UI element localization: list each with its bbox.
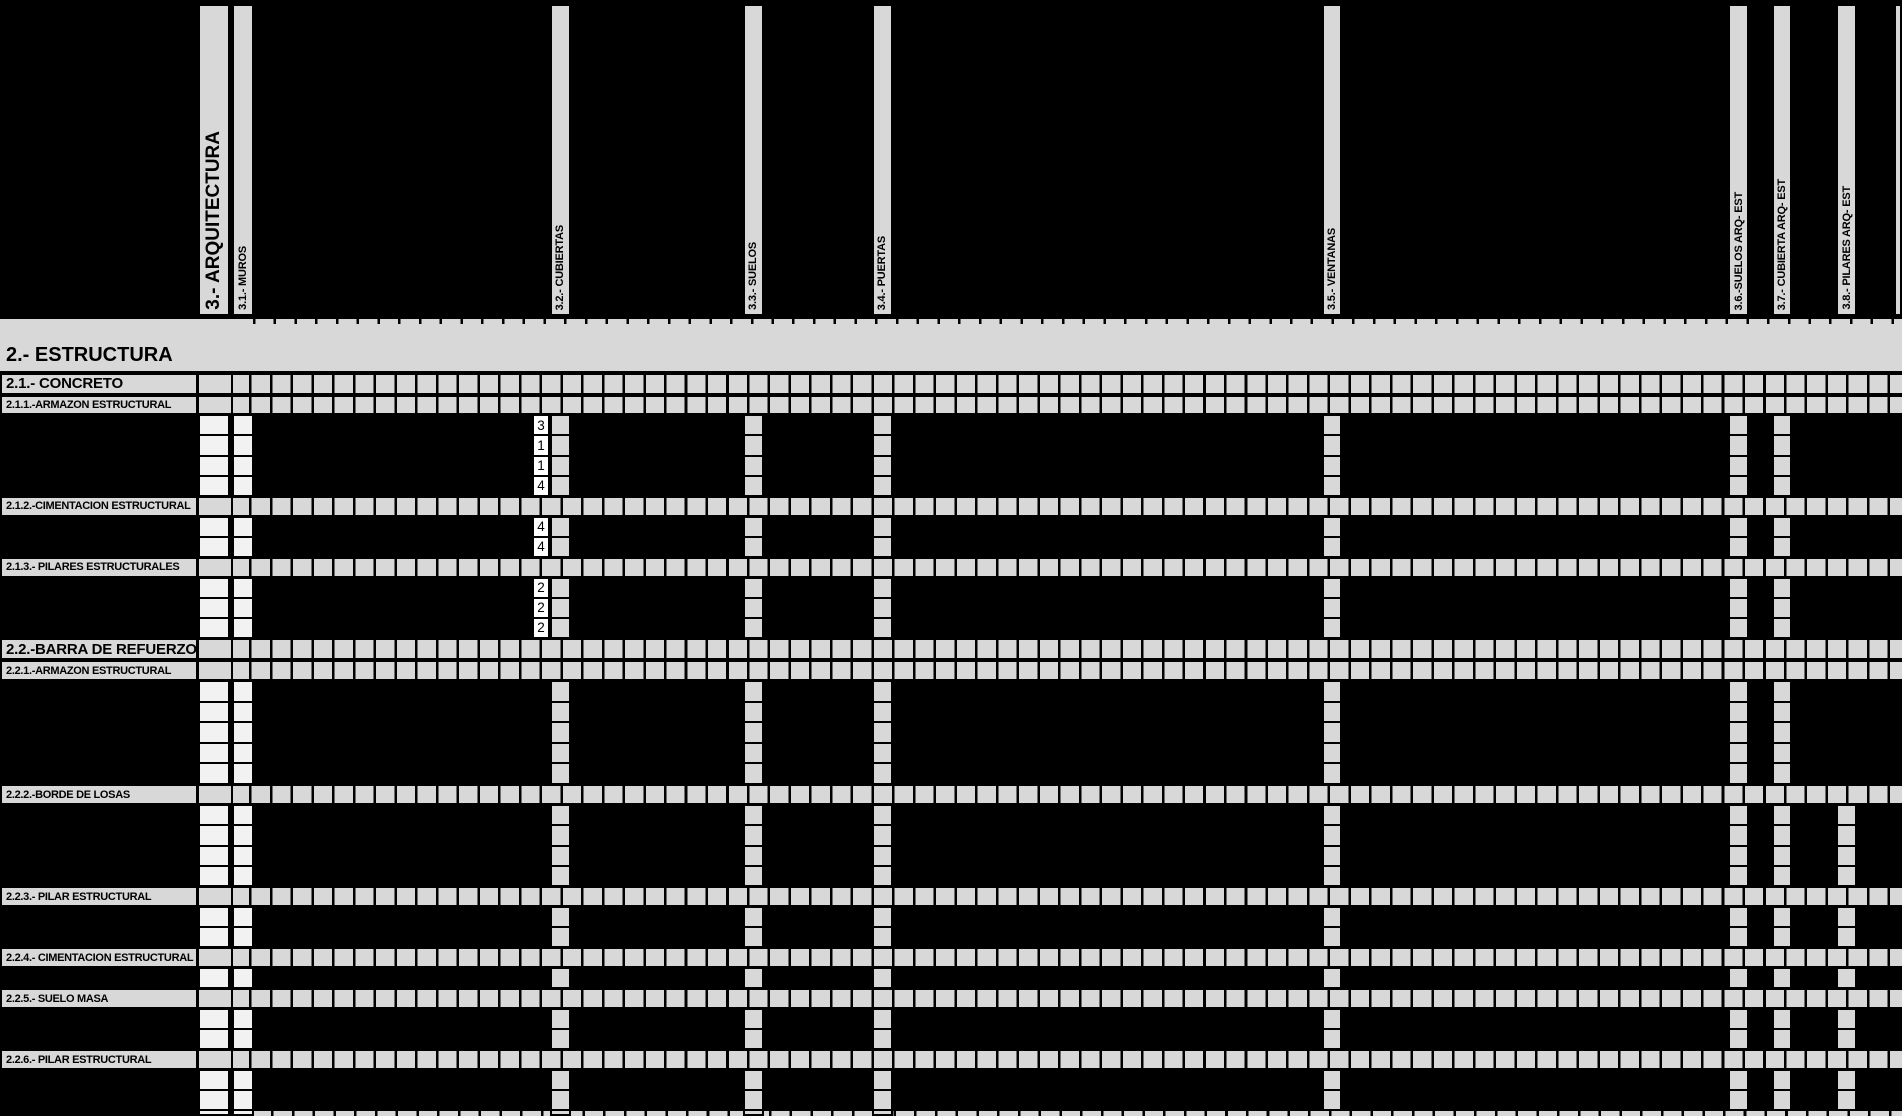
matrix-cell-partial-puertas[interactable] [872, 1109, 893, 1116]
matrix-cell-cubierta_arq_est[interactable] [1772, 455, 1793, 477]
matrix-cell-suelos[interactable] [743, 1089, 764, 1111]
matrix-cell-suelos[interactable] [743, 824, 764, 846]
matrix-cell-suelos[interactable] [743, 577, 764, 599]
matrix-cell-ventanas[interactable] [1322, 762, 1343, 785]
row-wide-cell[interactable] [197, 660, 233, 681]
matrix-cell-muros[interactable] [232, 824, 254, 846]
matrix-cell-cubierta_arq_est[interactable] [1772, 824, 1793, 846]
matrix-cell-arquitectura[interactable] [198, 577, 230, 599]
matrix-cell-arquitectura[interactable] [198, 845, 230, 867]
matrix-cell-muros[interactable] [232, 1008, 254, 1030]
matrix-cell-suelos[interactable] [743, 680, 764, 703]
matrix-cell-cubiertas[interactable] [550, 824, 571, 846]
row-cell-strip[interactable] [231, 947, 1902, 968]
row-cell-strip[interactable] [231, 496, 1902, 517]
matrix-cell-cubiertas[interactable] [550, 845, 571, 867]
matrix-cell-puertas[interactable] [872, 845, 893, 867]
matrix-cell-pilares_arq_est[interactable] [1836, 1069, 1857, 1091]
matrix-cell-muros[interactable] [232, 906, 254, 928]
matrix-cell-ventanas[interactable] [1322, 536, 1343, 558]
matrix-cell-pilares_arq_est[interactable] [1836, 1089, 1857, 1111]
row-wide-cell[interactable] [197, 638, 233, 660]
matrix-cell-cubierta_arq_est[interactable] [1772, 434, 1793, 456]
matrix-cell-cubiertas[interactable] [550, 762, 571, 785]
row-label-cell: 2.2.6.- PILAR ESTRUCTURAL [0, 1049, 198, 1070]
matrix-cell-arquitectura[interactable] [198, 680, 230, 703]
row-label-cell: 2.2.5.- SUELO MASA [0, 988, 198, 1009]
row-cell-strip[interactable] [231, 784, 1902, 805]
matrix-cell-cubiertas[interactable] [550, 721, 571, 744]
matrix-cell-muros[interactable] [232, 414, 254, 436]
matrix-cell-suelos_arq_est[interactable] [1728, 845, 1749, 867]
matrix-cell-suelos_arq_est[interactable] [1728, 536, 1749, 558]
matrix-cell-suelos[interactable] [743, 455, 764, 477]
row-label: 2.1.- CONCRETO [6, 375, 123, 392]
column-header-suelos: 3.3.- SUELOS [743, 4, 764, 316]
matrix-cell-suelos_arq_est[interactable] [1728, 701, 1749, 724]
matrix-cell-suelos_arq_est[interactable] [1728, 721, 1749, 744]
row-label-cell: 2.1.1.-ARMAZON ESTRUCTURAL [0, 395, 198, 416]
column-header-cubiertas: 3.2.- CUBIERTAS [550, 4, 571, 316]
matrix-cell-suelos[interactable] [743, 865, 764, 887]
matrix-cell-suelos_arq_est[interactable] [1728, 1008, 1749, 1030]
matrix-cell-ventanas[interactable] [1322, 434, 1343, 456]
matrix-cell-puertas[interactable] [872, 597, 893, 619]
matrix-cell-arquitectura[interactable] [198, 762, 230, 785]
matrix-cell-pilares_arq_est[interactable] [1836, 845, 1857, 867]
row-wide-cell[interactable] [197, 784, 233, 805]
matrix-cell-ventanas[interactable] [1322, 804, 1343, 826]
row-cell-strip[interactable] [231, 988, 1902, 1009]
column-header-label: 3.4.- PUERTAS [876, 236, 888, 310]
matrix-cell-suelos_arq_est[interactable] [1728, 1089, 1749, 1111]
value-cell[interactable]: 1 [532, 434, 550, 456]
matrix-cell-puertas[interactable] [872, 516, 893, 538]
matrix-cell-ventanas[interactable] [1322, 742, 1343, 765]
matrix-cell-suelos[interactable] [743, 742, 764, 765]
matrix-cell-ventanas[interactable] [1322, 455, 1343, 477]
matrix-cell-ventanas[interactable] [1322, 824, 1343, 846]
matrix-cell-suelos_arq_est[interactable] [1728, 597, 1749, 619]
matrix-cell-ventanas[interactable] [1322, 577, 1343, 599]
matrix-cell-arquitectura[interactable] [198, 906, 230, 928]
row-label: 2.2.4.- CIMENTACION ESTRUCTURAL [6, 952, 193, 964]
matrix-cell-ventanas[interactable] [1322, 414, 1343, 436]
matrix-cell-cubiertas[interactable] [550, 701, 571, 724]
matrix-cell-cubierta_arq_est[interactable] [1772, 845, 1793, 867]
matrix-cell-cubiertas[interactable] [550, 577, 571, 599]
matrix-cell-puertas[interactable] [872, 414, 893, 436]
matrix-cell-suelos[interactable] [743, 1069, 764, 1091]
matrix-cell-muros[interactable] [232, 617, 254, 639]
matrix-cell-cubierta_arq_est[interactable] [1772, 865, 1793, 887]
column-header-label: 3.2.- CUBIERTAS [554, 225, 566, 310]
matrix-cell-cubierta_arq_est[interactable] [1772, 475, 1793, 497]
column-header-ventanas: 3.5.- VENTANAS [1322, 4, 1343, 316]
value-cell[interactable]: 4 [532, 536, 550, 558]
matrix-cell-cubiertas[interactable] [550, 434, 571, 456]
matrix-cell-cubierta_arq_est[interactable] [1772, 906, 1793, 928]
matrix-cell-cubiertas[interactable] [550, 926, 571, 948]
matrix-cell-suelos[interactable] [743, 762, 764, 785]
matrix-cell-puertas[interactable] [872, 865, 893, 887]
row-label: 2.2.3.- PILAR ESTRUCTURAL [6, 891, 151, 903]
matrix-cell-muros[interactable] [232, 536, 254, 558]
column-header-suelos_arq_est: 3.6.-SUELOS ARQ- EST [1728, 4, 1749, 316]
column-header-label: 3.6.-SUELOS ARQ- EST [1733, 192, 1745, 310]
matrix-cell-cubiertas[interactable] [550, 414, 571, 436]
matrix-cell-arquitectura[interactable] [198, 516, 230, 538]
row-subsection: 2.2.5.- SUELO MASA [0, 988, 1902, 1009]
matrix-cell-muros[interactable] [232, 804, 254, 826]
row-label-cell: 2.1.3.- PILARES ESTRUCTURALES [0, 557, 198, 578]
matrix-cell-suelos_arq_est[interactable] [1728, 680, 1749, 703]
matrix-cell-suelos[interactable] [743, 414, 764, 436]
row-cell-strip[interactable] [231, 1049, 1902, 1070]
row-subsection: 2.2.3.- PILAR ESTRUCTURAL [0, 886, 1902, 907]
matrix-cell-cubierta_arq_est[interactable] [1772, 926, 1793, 948]
matrix-cell-ventanas[interactable] [1322, 1028, 1343, 1050]
matrix-cell-puertas[interactable] [872, 536, 893, 558]
matrix-cell-suelos[interactable] [743, 926, 764, 948]
column-header-label: 3.5.- VENTANAS [1326, 228, 1338, 310]
matrix-cell-suelos[interactable] [743, 804, 764, 826]
matrix-cell-cubierta_arq_est[interactable] [1772, 967, 1793, 989]
matrix-cell-cubiertas[interactable] [550, 804, 571, 826]
value-cell[interactable]: 4 [532, 475, 550, 497]
matrix-cell-cubiertas[interactable] [550, 865, 571, 887]
column-header-label: 3.- ARQUITECTURA [203, 131, 225, 310]
matrix-cell-arquitectura[interactable] [198, 865, 230, 887]
row-label: 2.2.2.-BORDE DE LOSAS [6, 789, 130, 801]
matrix-cell-cubiertas[interactable] [550, 742, 571, 765]
row-subsection: 2.1.2.-CIMENTACION ESTRUCTURAL [0, 496, 1902, 517]
matrix-cell-ventanas[interactable] [1322, 597, 1343, 619]
row-label: 2.2.5.- SUELO MASA [6, 993, 108, 1005]
matrix-cell-suelos[interactable] [743, 475, 764, 497]
matrix-cell-cubierta_arq_est[interactable] [1772, 721, 1793, 744]
column-header-pilares_arq_est: 3.8.- PILARES ARQ- EST [1836, 4, 1857, 316]
matrix-cell-suelos_arq_est[interactable] [1728, 455, 1749, 477]
row-label-cell: 2.1.2.-CIMENTACION ESTRUCTURAL [0, 496, 198, 517]
matrix-cell-puertas[interactable] [872, 455, 893, 477]
matrix-cell-puertas[interactable] [872, 824, 893, 846]
matrix-cell-suelos_arq_est[interactable] [1728, 434, 1749, 456]
matrix-cell-ventanas[interactable] [1322, 516, 1343, 538]
matrix-cell-arquitectura[interactable] [198, 434, 230, 456]
matrix-cell-arquitectura[interactable] [198, 804, 230, 826]
value-cell[interactable]: 4 [532, 516, 550, 538]
matrix-cell-muros[interactable] [232, 1089, 254, 1111]
value-cell[interactable]: 1 [532, 455, 550, 477]
matrix-cell-arquitectura[interactable] [198, 414, 230, 436]
matrix-cell-suelos[interactable] [743, 536, 764, 558]
matrix-cell-partial-arquitectura[interactable] [198, 1109, 230, 1116]
matrix-cell-pilares_arq_est[interactable] [1836, 926, 1857, 948]
matrix-cell-arquitectura[interactable] [198, 455, 230, 477]
matrix-cell-muros[interactable] [232, 1069, 254, 1091]
matrix-cell-cubierta_arq_est[interactable] [1772, 1069, 1793, 1091]
interference-matrix: 2.- ESTRUCTURA 3.- ARQUITECTURA3.1.- MUR… [0, 0, 1902, 1116]
matrix-cell-pilares_arq_est[interactable] [1836, 1008, 1857, 1030]
matrix-cell-suelos_arq_est[interactable] [1728, 516, 1749, 538]
row-wide-cell[interactable] [197, 947, 233, 968]
matrix-cell-arquitectura[interactable] [198, 926, 230, 948]
matrix-cell-ventanas[interactable] [1322, 926, 1343, 948]
matrix-cell-suelos[interactable] [743, 1028, 764, 1050]
row-cell-strip[interactable] [231, 660, 1902, 681]
matrix-cell-cubiertas[interactable] [550, 597, 571, 619]
matrix-cell-ventanas[interactable] [1322, 845, 1343, 867]
matrix-cell-arquitectura[interactable] [198, 824, 230, 846]
matrix-cell-puertas[interactable] [872, 906, 893, 928]
matrix-cell-pilares_arq_est[interactable] [1836, 824, 1857, 846]
matrix-cell-suelos[interactable] [743, 516, 764, 538]
matrix-cell-pilares_arq_est[interactable] [1836, 906, 1857, 928]
row-label-cell: 2.2.4.- CIMENTACION ESTRUCTURAL [0, 947, 198, 968]
matrix-cell-ventanas[interactable] [1322, 617, 1343, 639]
column-header-muros: 3.1.- MUROS [232, 4, 254, 316]
matrix-cell-muros[interactable] [232, 926, 254, 948]
matrix-cell-puertas[interactable] [872, 1008, 893, 1030]
matrix-cell-puertas[interactable] [872, 742, 893, 765]
row-wide-cell[interactable] [197, 496, 233, 517]
column-header-label: 3.3.- SUELOS [747, 242, 759, 310]
value-cell[interactable]: 2 [532, 577, 550, 599]
matrix-cell-partial-suelos[interactable] [743, 1109, 764, 1116]
matrix-cell-suelos[interactable] [743, 967, 764, 989]
row-cell-strip[interactable] [231, 638, 1902, 660]
value-cell[interactable]: 3 [532, 414, 550, 436]
matrix-cell-ventanas[interactable] [1322, 906, 1343, 928]
column-header-edge_partial [1894, 4, 1902, 316]
matrix-cell-suelos_arq_est[interactable] [1728, 824, 1749, 846]
row-wide-cell[interactable] [197, 557, 233, 578]
matrix-cell-ventanas[interactable] [1322, 1089, 1343, 1111]
matrix-cell-cubiertas[interactable] [550, 536, 571, 558]
matrix-cell-pilares_arq_est[interactable] [1836, 967, 1857, 989]
row-subsection: 2.2.6.- PILAR ESTRUCTURAL [0, 1049, 1902, 1070]
matrix-cell-muros[interactable] [232, 577, 254, 599]
column-header-label: 3.8.- PILARES ARQ- EST [1841, 186, 1853, 310]
matrix-cell-suelos_arq_est[interactable] [1728, 762, 1749, 785]
matrix-cell-suelos[interactable] [743, 597, 764, 619]
matrix-cell-cubierta_arq_est[interactable] [1772, 516, 1793, 538]
row-group-banner-label: 2.- ESTRUCTURA [6, 344, 173, 367]
matrix-cell-suelos[interactable] [743, 845, 764, 867]
matrix-cell-cubierta_arq_est[interactable] [1772, 577, 1793, 599]
value-cell[interactable]: 2 [532, 597, 550, 619]
matrix-cell-muros[interactable] [232, 721, 254, 744]
matrix-cell-arquitectura[interactable] [198, 1089, 230, 1111]
matrix-cell-cubiertas[interactable] [550, 1028, 571, 1050]
matrix-cell-cubierta_arq_est[interactable] [1772, 1089, 1793, 1111]
matrix-cell-puertas[interactable] [872, 926, 893, 948]
row-label: 2.1.1.-ARMAZON ESTRUCTURAL [6, 399, 171, 411]
matrix-cell-puertas[interactable] [872, 434, 893, 456]
matrix-cell-pilares_arq_est[interactable] [1836, 1028, 1857, 1050]
matrix-cell-puertas[interactable] [872, 1069, 893, 1091]
matrix-cell-suelos_arq_est[interactable] [1728, 475, 1749, 497]
matrix-cell-cubiertas[interactable] [550, 967, 571, 989]
matrix-cell-suelos_arq_est[interactable] [1728, 804, 1749, 826]
matrix-cell-suelos_arq_est[interactable] [1728, 865, 1749, 887]
matrix-cell-arquitectura[interactable] [198, 536, 230, 558]
row-wide-cell[interactable] [197, 373, 233, 395]
matrix-cell-muros[interactable] [232, 434, 254, 456]
matrix-cell-suelos_arq_est[interactable] [1728, 577, 1749, 599]
matrix-cell-cubierta_arq_est[interactable] [1772, 680, 1793, 703]
matrix-cell-muros[interactable] [232, 475, 254, 497]
matrix-cell-suelos_arq_est[interactable] [1728, 414, 1749, 436]
row-wide-cell[interactable] [197, 395, 233, 416]
matrix-cell-ventanas[interactable] [1322, 1069, 1343, 1091]
matrix-cell-ventanas[interactable] [1322, 865, 1343, 887]
matrix-cell-cubierta_arq_est[interactable] [1772, 762, 1793, 785]
row-subsection: 2.1.3.- PILARES ESTRUCTURALES [0, 557, 1902, 578]
matrix-cell-cubierta_arq_est[interactable] [1772, 701, 1793, 724]
matrix-cell-ventanas[interactable] [1322, 1008, 1343, 1030]
row-cell-strip[interactable] [231, 557, 1902, 578]
matrix-cell-suelos_arq_est[interactable] [1728, 1069, 1749, 1091]
column-header-arquitectura: 3.- ARQUITECTURA [198, 4, 230, 316]
row-subsection: 2.1.1.-ARMAZON ESTRUCTURAL [0, 395, 1902, 416]
matrix-cell-suelos_arq_est[interactable] [1728, 926, 1749, 948]
matrix-cell-pilares_arq_est[interactable] [1836, 865, 1857, 887]
matrix-cell-cubiertas[interactable] [550, 1089, 571, 1111]
matrix-cell-suelos_arq_est[interactable] [1728, 742, 1749, 765]
matrix-cell-ventanas[interactable] [1322, 475, 1343, 497]
matrix-cell-cubierta_arq_est[interactable] [1772, 536, 1793, 558]
matrix-cell-puertas[interactable] [872, 617, 893, 639]
matrix-cell-suelos_arq_est[interactable] [1728, 967, 1749, 989]
column-header-puertas: 3.4.- PUERTAS [872, 4, 893, 316]
matrix-cell-puertas[interactable] [872, 804, 893, 826]
matrix-cell-arquitectura[interactable] [198, 721, 230, 744]
matrix-cell-cubierta_arq_est[interactable] [1772, 617, 1793, 639]
row-label-cell: 2.1.- CONCRETO [0, 373, 198, 395]
column-header-label: 3.7.- CUBIERTA ARQ- EST [1776, 179, 1788, 310]
row-label-cell: 2.2.-BARRA DE REFUERZO [0, 638, 198, 660]
matrix-cell-puertas[interactable] [872, 721, 893, 744]
matrix-cell-arquitectura[interactable] [198, 742, 230, 765]
row-wide-cell[interactable] [197, 1049, 233, 1070]
matrix-cell-muros[interactable] [232, 845, 254, 867]
matrix-cell-muros[interactable] [232, 762, 254, 785]
matrix-cell-cubiertas[interactable] [550, 1069, 571, 1091]
row-wide-cell[interactable] [197, 886, 233, 907]
matrix-cell-muros[interactable] [232, 516, 254, 538]
matrix-cell-muros[interactable] [232, 680, 254, 703]
banner-grid-ticks [253, 319, 1902, 324]
matrix-cell-suelos[interactable] [743, 906, 764, 928]
matrix-cell-puertas[interactable] [872, 680, 893, 703]
row-label: 2.2.6.- PILAR ESTRUCTURAL [6, 1054, 151, 1066]
matrix-cell-suelos[interactable] [743, 434, 764, 456]
row-section: 2.1.- CONCRETO [0, 373, 1902, 395]
matrix-cell-ventanas[interactable] [1322, 680, 1343, 703]
row-cell-strip[interactable] [231, 886, 1902, 907]
matrix-cell-suelos_arq_est[interactable] [1728, 1028, 1749, 1050]
matrix-cell-suelos[interactable] [743, 617, 764, 639]
matrix-cell-ventanas[interactable] [1322, 701, 1343, 724]
matrix-cell-muros[interactable] [232, 701, 254, 724]
matrix-cell-muros[interactable] [232, 455, 254, 477]
matrix-cell-cubiertas[interactable] [550, 475, 571, 497]
matrix-cell-puertas[interactable] [872, 1089, 893, 1111]
matrix-cell-cubiertas[interactable] [550, 455, 571, 477]
row-label: 2.2.-BARRA DE REFUERZO [6, 641, 197, 658]
row-label: 2.2.1.-ARMAZON ESTRUCTURAL [6, 665, 171, 677]
matrix-cell-ventanas[interactable] [1322, 721, 1343, 744]
matrix-cell-partial-muros[interactable] [232, 1109, 254, 1116]
matrix-cell-suelos_arq_est[interactable] [1728, 906, 1749, 928]
matrix-cell-cubierta_arq_est[interactable] [1772, 1028, 1793, 1050]
matrix-cell-suelos_arq_est[interactable] [1728, 617, 1749, 639]
matrix-cell-puertas[interactable] [872, 577, 893, 599]
matrix-cell-cubierta_arq_est[interactable] [1772, 597, 1793, 619]
matrix-cell-muros[interactable] [232, 742, 254, 765]
matrix-cell-puertas[interactable] [872, 1028, 893, 1050]
matrix-cell-pilares_arq_est[interactable] [1836, 804, 1857, 826]
matrix-cell-partial-cubiertas[interactable] [550, 1109, 571, 1116]
matrix-cell-arquitectura[interactable] [198, 617, 230, 639]
bottom-cutoff-row [253, 1111, 1902, 1116]
row-label: 2.1.2.-CIMENTACION ESTRUCTURAL [6, 500, 191, 512]
matrix-cell-suelos[interactable] [743, 721, 764, 744]
matrix-cell-cubiertas[interactable] [550, 906, 571, 928]
row-subsection: 2.2.1.-ARMAZON ESTRUCTURAL [0, 660, 1902, 681]
matrix-cell-muros[interactable] [232, 1028, 254, 1050]
row-label-cell: 2.2.2.-BORDE DE LOSAS [0, 784, 198, 805]
matrix-cell-arquitectura[interactable] [198, 1008, 230, 1030]
matrix-cell-arquitectura[interactable] [198, 1069, 230, 1091]
matrix-cell-cubierta_arq_est[interactable] [1772, 742, 1793, 765]
matrix-cell-ventanas[interactable] [1322, 967, 1343, 989]
matrix-cell-suelos[interactable] [743, 701, 764, 724]
matrix-cell-arquitectura[interactable] [198, 475, 230, 497]
matrix-cell-cubiertas[interactable] [550, 617, 571, 639]
matrix-cell-puertas[interactable] [872, 701, 893, 724]
matrix-cell-puertas[interactable] [872, 762, 893, 785]
matrix-cell-arquitectura[interactable] [198, 597, 230, 619]
row-label: 2.1.3.- PILARES ESTRUCTURALES [6, 561, 179, 573]
row-cell-strip[interactable] [231, 395, 1902, 416]
matrix-cell-muros[interactable] [232, 597, 254, 619]
matrix-cell-suelos[interactable] [743, 1008, 764, 1030]
value-cell[interactable]: 2 [532, 617, 550, 639]
row-cell-strip[interactable] [231, 373, 1902, 395]
matrix-cell-muros[interactable] [232, 967, 254, 989]
matrix-cell-arquitectura[interactable] [198, 1028, 230, 1050]
column-header-cubierta_arq_est: 3.7.- CUBIERTA ARQ- EST [1772, 4, 1793, 316]
matrix-cell-arquitectura[interactable] [198, 967, 230, 989]
row-label-cell: 2.2.3.- PILAR ESTRUCTURAL [0, 886, 198, 907]
row-wide-cell[interactable] [197, 988, 233, 1009]
matrix-cell-arquitectura[interactable] [198, 701, 230, 724]
matrix-cell-cubierta_arq_est[interactable] [1772, 804, 1793, 826]
matrix-cell-muros[interactable] [232, 865, 254, 887]
matrix-cell-cubiertas[interactable] [550, 680, 571, 703]
matrix-cell-cubiertas[interactable] [550, 1008, 571, 1030]
matrix-cell-puertas[interactable] [872, 475, 893, 497]
row-label-cell: 2.2.1.-ARMAZON ESTRUCTURAL [0, 660, 198, 681]
matrix-cell-cubierta_arq_est[interactable] [1772, 414, 1793, 436]
column-header-label: 3.1.- MUROS [237, 246, 249, 310]
matrix-cell-cubiertas[interactable] [550, 516, 571, 538]
matrix-cell-cubierta_arq_est[interactable] [1772, 1008, 1793, 1030]
matrix-cell-puertas[interactable] [872, 967, 893, 989]
